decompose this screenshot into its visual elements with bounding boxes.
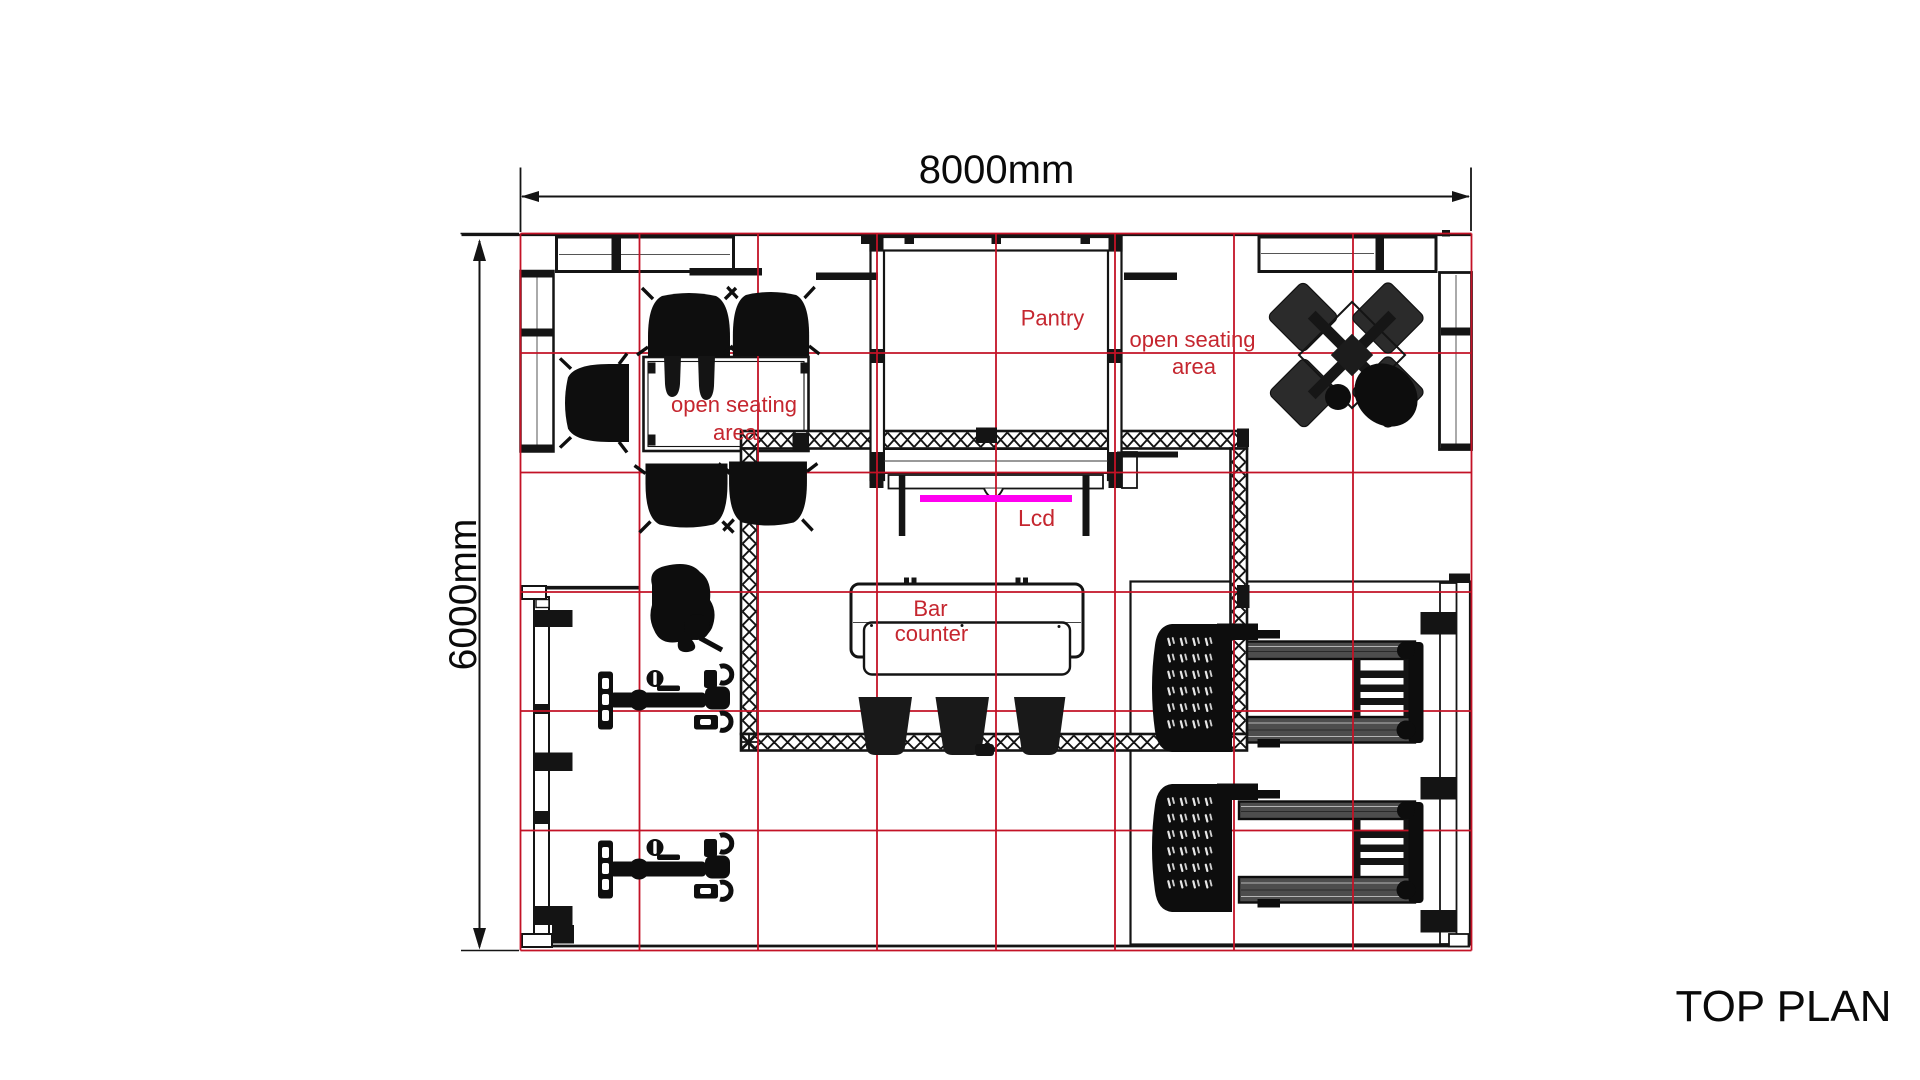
svg-text:open seating: open seating (671, 392, 797, 417)
svg-text:Bar: Bar (913, 596, 947, 621)
svg-text:area: area (713, 420, 758, 445)
svg-text:area: area (1172, 354, 1217, 379)
svg-text:6000mm: 6000mm (442, 519, 485, 671)
svg-text:counter: counter (895, 621, 968, 646)
svg-text:Lcd: Lcd (1018, 505, 1055, 531)
svg-text:TOP PLAN: TOP PLAN (1675, 982, 1891, 1031)
svg-text:open seating: open seating (1130, 327, 1256, 352)
svg-text:8000mm: 8000mm (919, 148, 1075, 192)
svg-text:Pantry: Pantry (1021, 306, 1085, 331)
